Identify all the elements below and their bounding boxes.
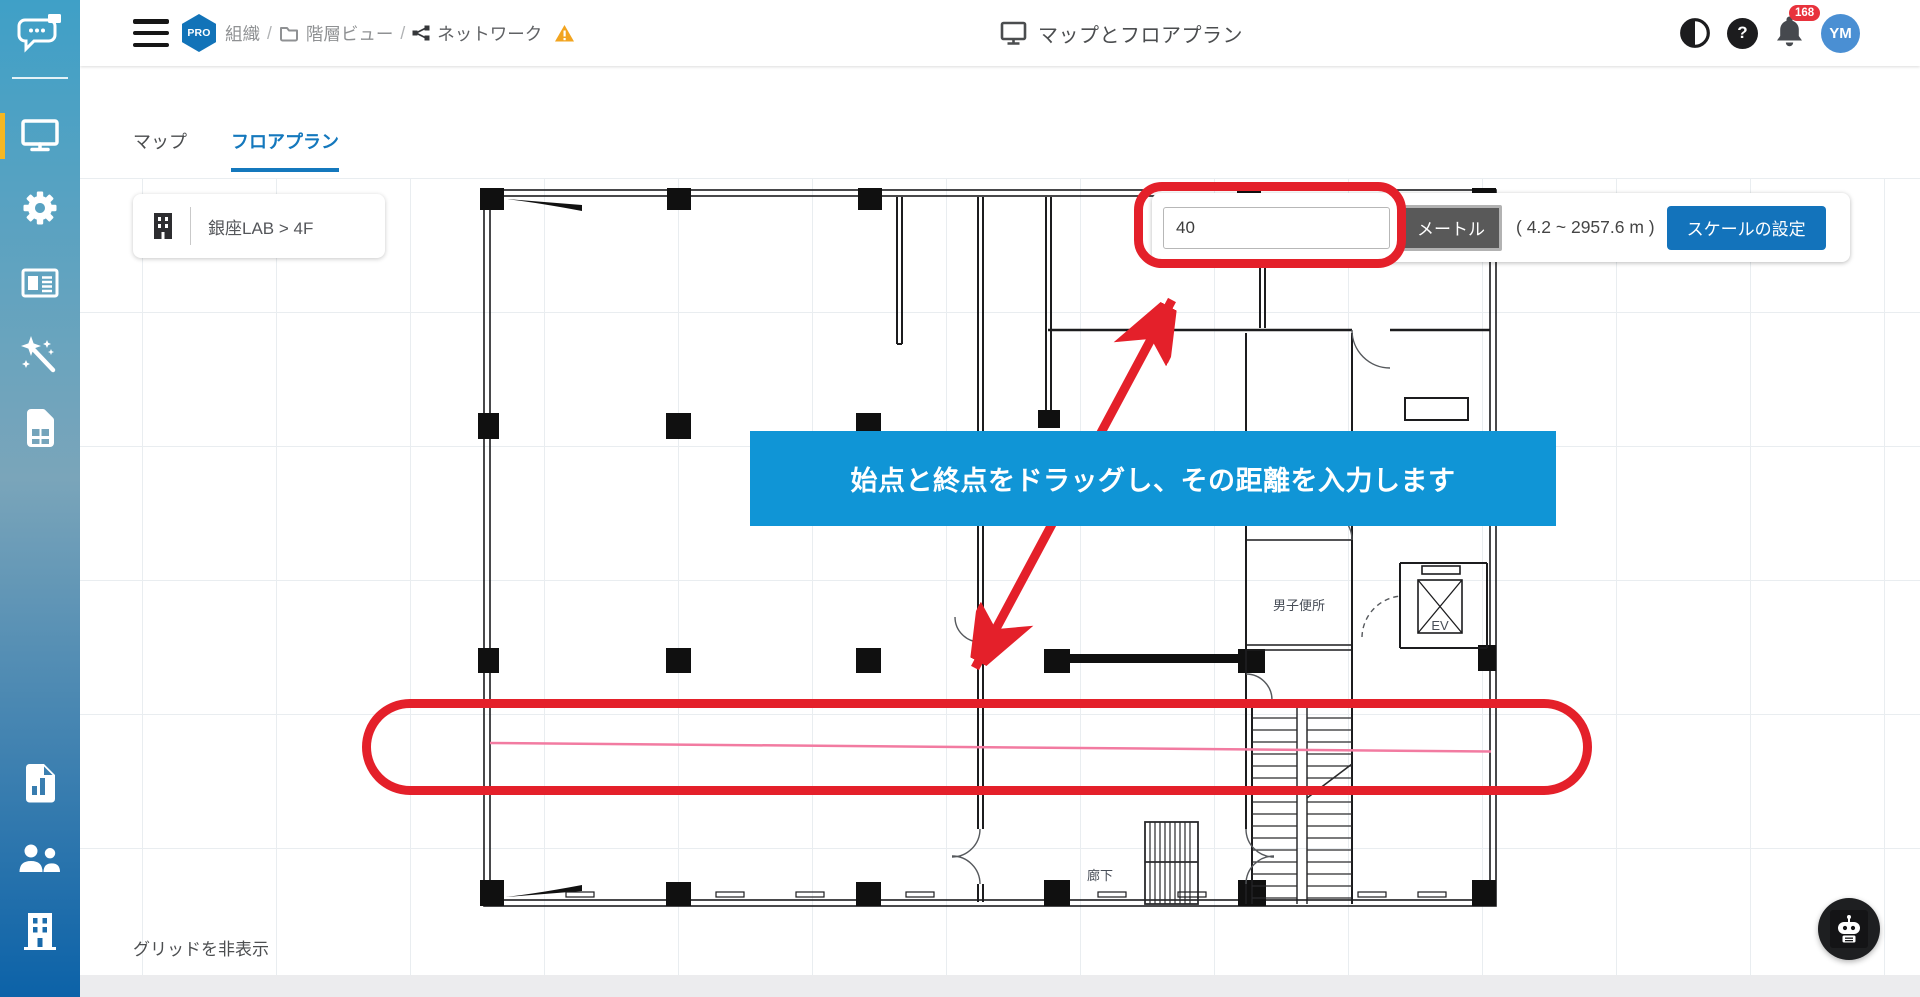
sidebar-item-maps[interactable] [0, 110, 80, 162]
floor-plan-drawing: 男子便所 EV 廊下 [478, 186, 1500, 910]
app-logo-chat-cloud-icon[interactable] [0, 8, 80, 60]
header-actions: ? 168 YM [1679, 0, 1860, 66]
notification-badge: 168 [1789, 5, 1820, 21]
room-label-elevator: EV [1431, 618, 1449, 633]
building-icon [23, 910, 57, 950]
sidebar-item-buildings[interactable] [0, 904, 80, 956]
contrast-icon[interactable] [1679, 17, 1711, 49]
breadcrumb-separator: / [400, 23, 405, 44]
breadcrumb-network[interactable]: ネットワーク [437, 21, 542, 46]
grid-toggle[interactable]: グリッドを非表示 [133, 935, 269, 960]
sidebar-item-news[interactable] [0, 257, 80, 309]
pro-badge-label: PRO [187, 27, 210, 39]
help-glyph: ? [1737, 23, 1747, 43]
room-label-corridor: 廊下 [1087, 868, 1113, 883]
distance-input[interactable] [1163, 207, 1390, 249]
tab-floorplan[interactable]: フロアプラン [231, 130, 339, 172]
page-title: マップとフロアプラン [1038, 19, 1243, 48]
monitor-icon [20, 118, 60, 154]
users-icon [18, 842, 62, 874]
page-title-wrap: マップとフロアプラン [1000, 0, 1243, 66]
scale-toolbar: メートル ( 4.2 ~ 2957.6 m ) スケールの設定 [1152, 193, 1850, 262]
floor-plan[interactable]: 男子便所 EV 廊下 [478, 186, 1500, 910]
building-icon [151, 212, 175, 240]
tab-bar: マップ フロアプラン [133, 130, 339, 172]
monitor-icon [1000, 21, 1027, 46]
scale-range-hint: ( 4.2 ~ 2957.6 m ) [1516, 217, 1655, 238]
location-label: 銀座LAB > 4F [208, 214, 313, 239]
chat-cloud-icon [17, 13, 63, 55]
location-selector[interactable]: 銀座LAB > 4F [133, 194, 385, 258]
location-divider [190, 207, 191, 245]
sidebar-item-users[interactable] [0, 832, 80, 884]
instruction-banner: 始点と終点をドラッグし、その距離を入力します [750, 431, 1556, 526]
magic-wand-icon [20, 336, 60, 376]
chatbot-icon-pad [1830, 910, 1868, 948]
sidebar-divider [12, 77, 68, 79]
breadcrumb: 組織 / 階層ビュー / ネットワーク [225, 0, 575, 66]
sim-card-icon [24, 408, 57, 448]
set-scale-button[interactable]: スケールの設定 [1667, 206, 1826, 250]
gear-icon [20, 188, 60, 228]
report-document-icon [23, 763, 57, 803]
newspaper-icon [21, 267, 59, 299]
unit-button[interactable]: メートル [1400, 205, 1502, 251]
tab-map[interactable]: マップ [133, 130, 187, 172]
header: PRO 組織 / 階層ビュー / ネットワーク マップとフロアプラン [80, 0, 1920, 66]
avatar[interactable]: YM [1821, 14, 1860, 53]
notifications-button[interactable]: 168 [1774, 14, 1805, 52]
sidebar-item-settings[interactable] [0, 182, 80, 234]
breadcrumb-hierarchy-view[interactable]: 階層ビュー [306, 21, 394, 46]
folder-icon [279, 25, 299, 42]
room-label-mens-restroom: 男子便所 [1273, 598, 1325, 613]
chatbot-button[interactable] [1818, 898, 1880, 960]
sidebar-item-reports[interactable] [0, 757, 80, 809]
pro-badge: PRO [182, 14, 216, 52]
sidebar-item-automation[interactable] [0, 330, 80, 382]
sidebar-item-sim[interactable] [0, 402, 80, 454]
sidebar [0, 0, 80, 997]
warning-icon [554, 24, 575, 43]
robot-icon [1834, 914, 1864, 944]
breadcrumb-separator: / [267, 23, 272, 44]
canvas-bottom-band [80, 975, 1920, 997]
hamburger-menu-icon[interactable] [133, 19, 169, 47]
breadcrumb-org[interactable]: 組織 [225, 21, 260, 46]
instruction-banner-text: 始点と終点をドラッグし、その距離を入力します [851, 459, 1456, 498]
network-icon [412, 25, 430, 41]
help-button[interactable]: ? [1727, 18, 1758, 49]
